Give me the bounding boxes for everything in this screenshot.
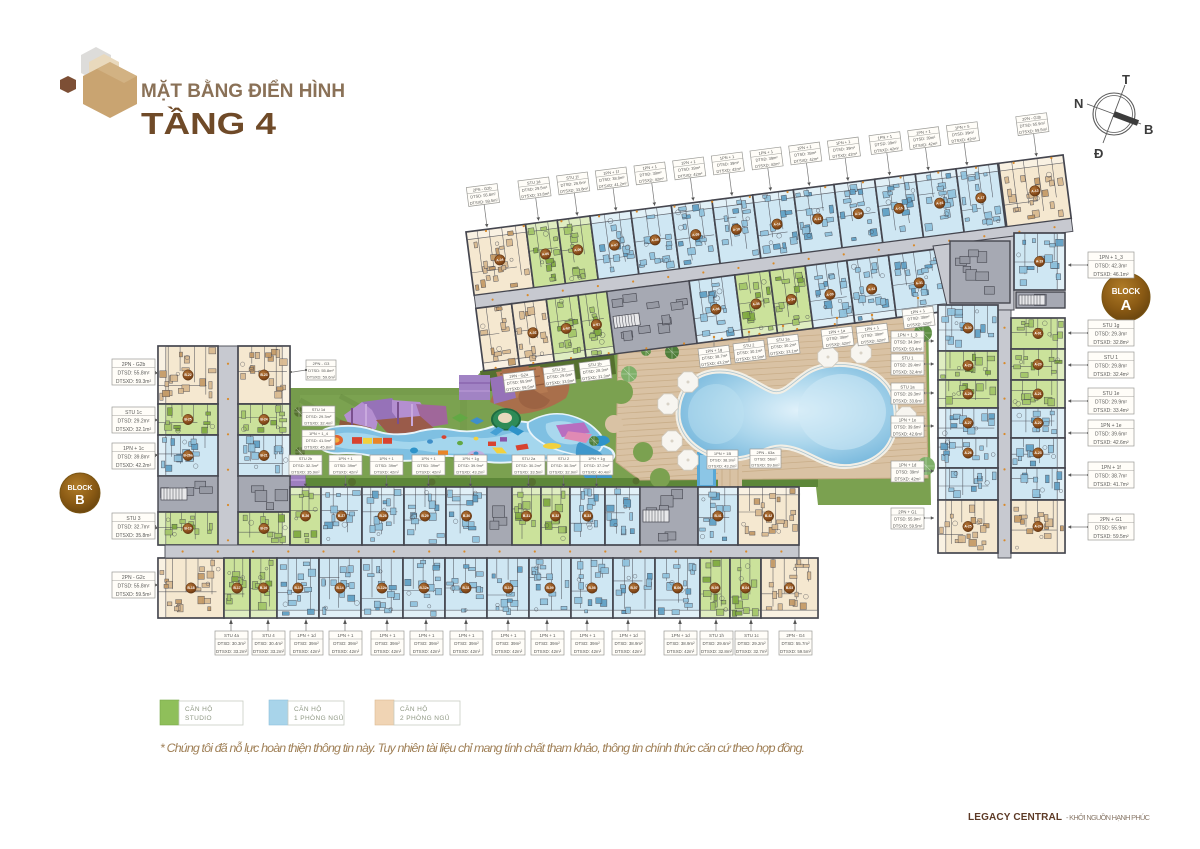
svg-text:DTSXD: 42m²: DTSXD: 42m² [416, 470, 442, 475]
svg-text:STU 1d: STU 1d [312, 407, 326, 412]
svg-text:2PN - G2c: 2PN - G2c [122, 575, 146, 581]
svg-text:B-10: B-10 [504, 586, 511, 590]
svg-text:A-22: A-22 [1034, 421, 1041, 425]
svg-text:DTSXD: 33.2m²: DTSXD: 33.2m² [216, 649, 248, 654]
svg-text:DTSXD: 33.5m²: DTSXD: 33.5m² [514, 470, 543, 475]
svg-text:- KHỞI NGUỒN HẠNH PHÚC: - KHỞI NGUỒN HẠNH PHÚC [1066, 812, 1151, 822]
svg-text:DTSXD: 59.6m²: DTSXD: 59.6m² [307, 375, 336, 380]
svg-text:DTSD: 55.8m²: DTSD: 55.8m² [118, 370, 150, 376]
svg-text:STU 1a: STU 1a [900, 385, 915, 390]
svg-text:1PN + 1: 1PN + 1 [379, 456, 394, 461]
svg-text:DTSXD: 42m²: DTSXD: 42m² [332, 649, 360, 654]
svg-text:B-20: B-20 [260, 527, 267, 531]
svg-text:DTSXD: 59.5m²: DTSXD: 59.5m² [1093, 534, 1129, 540]
svg-text:B-28: B-28 [379, 514, 386, 518]
svg-text:A-27: A-27 [964, 421, 971, 425]
svg-text:DTSD: 39.6m²: DTSD: 39.6m² [894, 425, 921, 430]
svg-text:DTSXD: 42m²: DTSXD: 42m² [374, 649, 402, 654]
svg-text:DTSXD: 43.2m²: DTSXD: 43.2m² [708, 464, 737, 469]
svg-text:DTSXD: 59.5m²: DTSXD: 59.5m² [893, 524, 923, 529]
svg-text:STU 1c: STU 1c [744, 633, 759, 638]
svg-text:DTSD: 39m²: DTSD: 39m² [334, 463, 357, 468]
svg-text:DTSXD: 42m²: DTSXD: 42m² [667, 649, 695, 654]
svg-text:B: B [75, 492, 84, 507]
svg-text:DTSXD: 35.8m²: DTSXD: 35.8m² [116, 533, 152, 539]
svg-text:DTSD: 39m²: DTSD: 39m² [294, 641, 319, 646]
svg-text:DTSD: 38.9m²: DTSD: 38.9m² [614, 641, 643, 646]
svg-text:A: A [1121, 297, 1132, 314]
svg-text:DTSXD: 32.7m²: DTSXD: 32.7m² [736, 649, 768, 654]
svg-text:DTSD: 29.9m²: DTSD: 29.9m² [1095, 399, 1127, 405]
svg-text:DTSXD: 42.6m²: DTSXD: 42.6m² [1093, 440, 1129, 446]
svg-text:1PN + 1: 1PN + 1 [338, 456, 353, 461]
svg-text:2PN - 63a: 2PN - 63a [756, 450, 775, 455]
svg-text:DTSD: 39m²: DTSD: 39m² [575, 641, 600, 646]
svg-text:1PN + 1g: 1PN + 1g [462, 456, 479, 461]
svg-text:2PN - G3: 2PN - G3 [313, 361, 330, 366]
svg-text:DTSXD: 59.5m²: DTSXD: 59.5m² [780, 649, 812, 654]
svg-text:1PN + 1f: 1PN + 1f [1101, 465, 1121, 471]
svg-text:B-29: B-29 [421, 514, 428, 518]
svg-text:B-08: B-08 [588, 586, 595, 590]
svg-text:DTSXD: 41.7m²: DTSXD: 41.7m² [1093, 482, 1129, 488]
svg-text:DTSD: 29.2m²: DTSD: 29.2m² [737, 641, 766, 646]
svg-text:STU 1: STU 1 [1104, 355, 1118, 361]
svg-text:DTSXD: 42m²: DTSXD: 42m² [453, 649, 481, 654]
svg-text:DTSD: 29.6m²: DTSD: 29.6m² [702, 641, 731, 646]
svg-text:B-17: B-17 [233, 586, 240, 590]
svg-text:B-12b: B-12b [377, 586, 386, 590]
svg-text:DTSD: 39.9m²: DTSD: 39.9m² [458, 463, 484, 468]
svg-text:DTSD: 38.3m²: DTSD: 38.3m² [710, 457, 736, 462]
svg-text:DTSXD: 33.2m²: DTSXD: 33.2m² [253, 649, 285, 654]
svg-text:DTSD: 55.9m²: DTSD: 55.9m² [894, 517, 921, 522]
svg-text:STU 2: STU 2 [558, 456, 570, 461]
svg-text:STU 1e: STU 1e [1103, 391, 1120, 397]
svg-text:A-30: A-30 [964, 326, 971, 330]
svg-text:B-09: B-09 [546, 586, 553, 590]
svg-text:DTSXD: 46.1m²: DTSXD: 46.1m² [1093, 272, 1129, 278]
svg-text:A-91: A-91 [1034, 332, 1041, 336]
svg-text:DTSD: 55.9m²: DTSD: 55.9m² [1095, 525, 1127, 531]
svg-text:Đ: Đ [1094, 146, 1103, 161]
svg-text:B-16: B-16 [260, 586, 267, 590]
svg-text:1PN + 1: 1PN + 1 [540, 633, 557, 638]
svg-text:STUDIO: STUDIO [185, 715, 212, 722]
svg-text:DTSD: 55.7m²: DTSD: 55.7m² [781, 641, 810, 646]
svg-text:B: B [1144, 122, 1153, 137]
svg-text:B-42: B-42 [765, 514, 772, 518]
svg-text:1PN + 1d: 1PN + 1d [619, 633, 638, 638]
svg-text:DTSD: 29.8m²: DTSD: 29.8m² [1095, 363, 1127, 369]
svg-text:1PN + 1d: 1PN + 1d [899, 463, 917, 468]
svg-text:DTSD: 30.3m²: DTSD: 30.3m² [217, 641, 246, 646]
svg-text:DTSD: 32.3m²: DTSD: 32.3m² [293, 463, 319, 468]
svg-text:1PN + 1_4: 1PN + 1_4 [309, 431, 329, 436]
svg-text:1PN + 1_3: 1PN + 1_3 [898, 333, 919, 338]
svg-text:DTSXD: 45.8m²: DTSXD: 45.8m² [304, 445, 333, 450]
svg-text:B-12a: B-12a [419, 586, 428, 590]
svg-text:DTSXD: 53.4m²: DTSXD: 53.4m² [893, 347, 923, 352]
svg-text:B-26a: B-26a [183, 454, 192, 458]
svg-text:DTSD: 38.9m²: DTSD: 38.9m² [666, 641, 695, 646]
svg-text:A-19: A-19 [1036, 260, 1043, 264]
svg-text:B-05: B-05 [711, 586, 718, 590]
svg-text:1PN + 1: 1PN + 1 [580, 633, 597, 638]
svg-text:STU 1g: STU 1g [1103, 323, 1120, 329]
svg-text:A-24: A-24 [1034, 525, 1041, 529]
svg-text:B-22: B-22 [184, 373, 191, 377]
svg-text:DTSXD: 42m²: DTSXD: 42m² [333, 470, 359, 475]
svg-text:STU 3: STU 3 [126, 516, 140, 522]
svg-text:DTSXD: 32.8m²: DTSXD: 32.8m² [1093, 340, 1129, 346]
svg-text:DTSD: 39m²: DTSD: 39m² [414, 641, 439, 646]
svg-text:DTSD: 29.3m²: DTSD: 29.3m² [894, 392, 921, 397]
svg-text:1 PHÒNG NGỦ: 1 PHÒNG NGỦ [294, 713, 344, 722]
svg-text:DTSD: 38.7m²: DTSD: 38.7m² [1095, 473, 1127, 479]
svg-text:B-27: B-27 [338, 514, 345, 518]
svg-text:DTSXD: 42m²: DTSXD: 42m² [894, 477, 921, 482]
svg-text:A-23: A-23 [1034, 451, 1041, 455]
svg-text:A-26: A-26 [964, 451, 971, 455]
svg-text:DTSXD: 42m²: DTSXD: 42m² [413, 649, 441, 654]
svg-text:DTSXD: 42m²: DTSXD: 42m² [534, 649, 562, 654]
svg-text:2 PHÒNG NGỦ: 2 PHÒNG NGỦ [400, 713, 450, 722]
svg-text:STU 1h: STU 1h [709, 633, 724, 638]
svg-text:B-14: B-14 [336, 586, 343, 590]
svg-text:DTSD: 55.8m²: DTSD: 55.8m² [118, 583, 150, 589]
svg-text:2PN + G1: 2PN + G1 [898, 510, 917, 515]
svg-text:DTSXD: 32.4m²: DTSXD: 32.4m² [1093, 372, 1129, 378]
svg-text:DTSXD: 59.6m²: DTSXD: 59.6m² [751, 463, 780, 468]
svg-text:DTSD: 39m²: DTSD: 39m² [375, 641, 400, 646]
svg-text:* Chúng tôi đã nỗ lực hoàn thi: * Chúng tôi đã nỗ lực hoàn thiện thông t… [160, 740, 805, 755]
svg-text:1PN + 1: 1PN + 1 [421, 456, 436, 461]
svg-text:A-20: A-20 [1034, 363, 1041, 367]
svg-text:B-31: B-31 [523, 514, 530, 518]
svg-text:2PN - G2b: 2PN - G2b [122, 362, 146, 368]
svg-text:DTSD: 41.5m²: DTSD: 41.5m² [306, 438, 332, 443]
svg-text:2PN - G4: 2PN - G4 [786, 633, 805, 638]
svg-text:DTSD: 30.2m²: DTSD: 30.2m² [516, 463, 542, 468]
svg-text:DTSXD: 43.2m²: DTSXD: 43.2m² [456, 470, 485, 475]
svg-text:1PN + 1_3: 1PN + 1_3 [1099, 255, 1123, 261]
svg-text:DTSXD: 35.9m²: DTSXD: 35.9m² [291, 470, 320, 475]
svg-text:DTSD: 30.4m²: DTSD: 30.4m² [254, 641, 283, 646]
svg-text:1PN + 1: 1PN + 1 [419, 633, 436, 638]
svg-text:STU 2a: STU 2a [522, 456, 536, 461]
svg-text:DTSXD: 42.6m²: DTSXD: 42.6m² [893, 432, 923, 437]
svg-text:LEGACY CENTRAL: LEGACY CENTRAL [968, 812, 1062, 823]
svg-text:1PN + 1B: 1PN + 1B [714, 451, 732, 456]
svg-text:DTSXD: 42.2m²: DTSXD: 42.2m² [116, 463, 152, 469]
svg-text:DTSD: 32.7m²: DTSD: 32.7m² [118, 524, 150, 530]
svg-text:DTSD: 30.3m²: DTSD: 30.3m² [551, 463, 577, 468]
svg-text:DTSD: 39m²: DTSD: 39m² [333, 641, 358, 646]
svg-text:DTSD: 55.8m²: DTSD: 55.8m² [308, 368, 334, 373]
svg-text:B-32: B-32 [552, 514, 559, 518]
svg-text:DTSD: 39m²: DTSD: 39m² [417, 463, 440, 468]
svg-text:1PN + 1c: 1PN + 1c [123, 446, 144, 452]
svg-text:1PN + 1e: 1PN + 1e [899, 418, 917, 423]
svg-text:B-21: B-21 [260, 454, 267, 458]
svg-text:B-30: B-30 [463, 514, 470, 518]
svg-text:B-18: B-18 [187, 586, 194, 590]
svg-text:STU 1: STU 1 [902, 356, 915, 361]
svg-text:DTSXD: 32.4m²: DTSXD: 32.4m² [893, 370, 923, 375]
svg-text:B-06: B-06 [674, 586, 681, 590]
svg-text:DTSD: 56m²: DTSD: 56m² [754, 456, 777, 461]
svg-text:DTSXD: 32.1m²: DTSXD: 32.1m² [116, 427, 152, 433]
svg-text:DTSD: 29.3m²: DTSD: 29.3m² [306, 414, 332, 419]
svg-text:STU 1c: STU 1c [125, 410, 142, 416]
svg-text:DTSD: 39m²: DTSD: 39m² [496, 641, 521, 646]
svg-text:DTSXD: 42m²: DTSXD: 42m² [615, 649, 643, 654]
svg-text:DTSXD: 42m²: DTSXD: 42m² [574, 649, 602, 654]
svg-text:CĂN HỘ: CĂN HỘ [185, 704, 213, 713]
svg-text:TẦNG 4: TẦNG 4 [141, 106, 277, 141]
svg-text:B-26: B-26 [302, 514, 309, 518]
svg-text:A-25: A-25 [964, 525, 971, 529]
svg-text:B-25: B-25 [184, 418, 191, 422]
svg-text:A-28: A-28 [964, 392, 971, 396]
svg-text:B-24: B-24 [260, 418, 267, 422]
svg-text:1PN + 1: 1PN + 1 [459, 633, 476, 638]
svg-text:DTSXD: 59.3m²: DTSXD: 59.3m² [116, 379, 152, 385]
svg-text:B-19: B-19 [184, 527, 191, 531]
svg-text:B-04: B-04 [742, 586, 749, 590]
svg-text:BLOCK: BLOCK [68, 485, 93, 492]
svg-text:1PN + 1e: 1PN + 1e [1101, 423, 1122, 429]
svg-text:1PN + 1: 1PN + 1 [501, 633, 518, 638]
svg-text:DTSD: 39m²: DTSD: 39m² [535, 641, 560, 646]
svg-text:DTSXD: 32.4m²: DTSXD: 32.4m² [304, 421, 333, 426]
svg-text:DTSD: 39.8m²: DTSD: 39.8m² [118, 454, 150, 460]
svg-text:1PN + 1d: 1PN + 1d [297, 633, 316, 638]
svg-text:B-07: B-07 [630, 586, 637, 590]
svg-text:B-33: B-33 [584, 514, 591, 518]
svg-text:DTSXD: 32.8m²: DTSXD: 32.8m² [701, 649, 733, 654]
svg-text:DTSXD: 33.4m²: DTSXD: 33.4m² [1093, 408, 1129, 414]
svg-text:DTSD: 37.2m²: DTSD: 37.2m² [584, 463, 610, 468]
svg-text:DTSXD: 42m²: DTSXD: 42m² [495, 649, 523, 654]
svg-text:B-15: B-15 [294, 586, 301, 590]
svg-text:1PN + 1: 1PN + 1 [380, 633, 397, 638]
svg-text:DTSD: 29.4m²: DTSD: 29.4m² [894, 363, 921, 368]
svg-text:DTSXD: 40.4m²: DTSXD: 40.4m² [582, 470, 611, 475]
svg-text:1PN + 1: 1PN + 1 [338, 633, 355, 638]
svg-text:1PN + 1g: 1PN + 1g [588, 456, 605, 461]
svg-text:MẶT BẰNG ĐIỂN HÌNH: MẶT BẰNG ĐIỂN HÌNH [141, 80, 345, 102]
svg-text:DTSD: 42.3m²: DTSD: 42.3m² [1095, 263, 1127, 269]
svg-text:B-23: B-23 [260, 373, 267, 377]
svg-text:1PN + 1d: 1PN + 1d [671, 633, 690, 638]
svg-text:STU 2b: STU 2b [299, 456, 313, 461]
svg-text:B-41: B-41 [714, 514, 721, 518]
svg-text:DTSD: 39m²: DTSD: 39m² [896, 470, 920, 475]
svg-text:B-03: B-03 [786, 586, 793, 590]
svg-text:DTSXD: 33.6m²: DTSXD: 33.6m² [893, 399, 923, 404]
svg-text:DTSD: 39.6m²: DTSD: 39.6m² [1095, 431, 1127, 437]
svg-text:STU 4: STU 4 [262, 633, 275, 638]
svg-text:BLOCK: BLOCK [1112, 287, 1141, 296]
svg-text:STU 4a: STU 4a [224, 633, 239, 638]
svg-text:DTSD: 39m²: DTSD: 39m² [454, 641, 479, 646]
svg-text:N: N [1074, 96, 1083, 111]
svg-text:DTSD: 29.3m²: DTSD: 29.3m² [1095, 331, 1127, 337]
svg-text:DTSD: 39m²: DTSD: 39m² [375, 463, 398, 468]
svg-text:DTSXD: 42m²: DTSXD: 42m² [374, 470, 400, 475]
svg-text:DTSD: 29.2m²: DTSD: 29.2m² [118, 418, 150, 424]
svg-text:A-21: A-21 [1034, 392, 1041, 396]
svg-text:T: T [1122, 72, 1130, 87]
svg-text:CĂN HỘ: CĂN HỘ [294, 704, 322, 713]
svg-text:DTSD: 34.9m²: DTSD: 34.9m² [894, 340, 921, 345]
svg-text:DTSXD: 42m²: DTSXD: 42m² [293, 649, 321, 654]
svg-text:2PN + G1: 2PN + G1 [1100, 517, 1122, 523]
svg-text:CĂN HỘ: CĂN HỘ [400, 704, 428, 713]
svg-text:DTSXD: 32.9m²: DTSXD: 32.9m² [549, 470, 578, 475]
svg-text:B-11: B-11 [462, 586, 469, 590]
svg-text:A-29: A-29 [964, 364, 971, 368]
svg-text:DTSXD: 59.5m²: DTSXD: 59.5m² [116, 592, 152, 598]
